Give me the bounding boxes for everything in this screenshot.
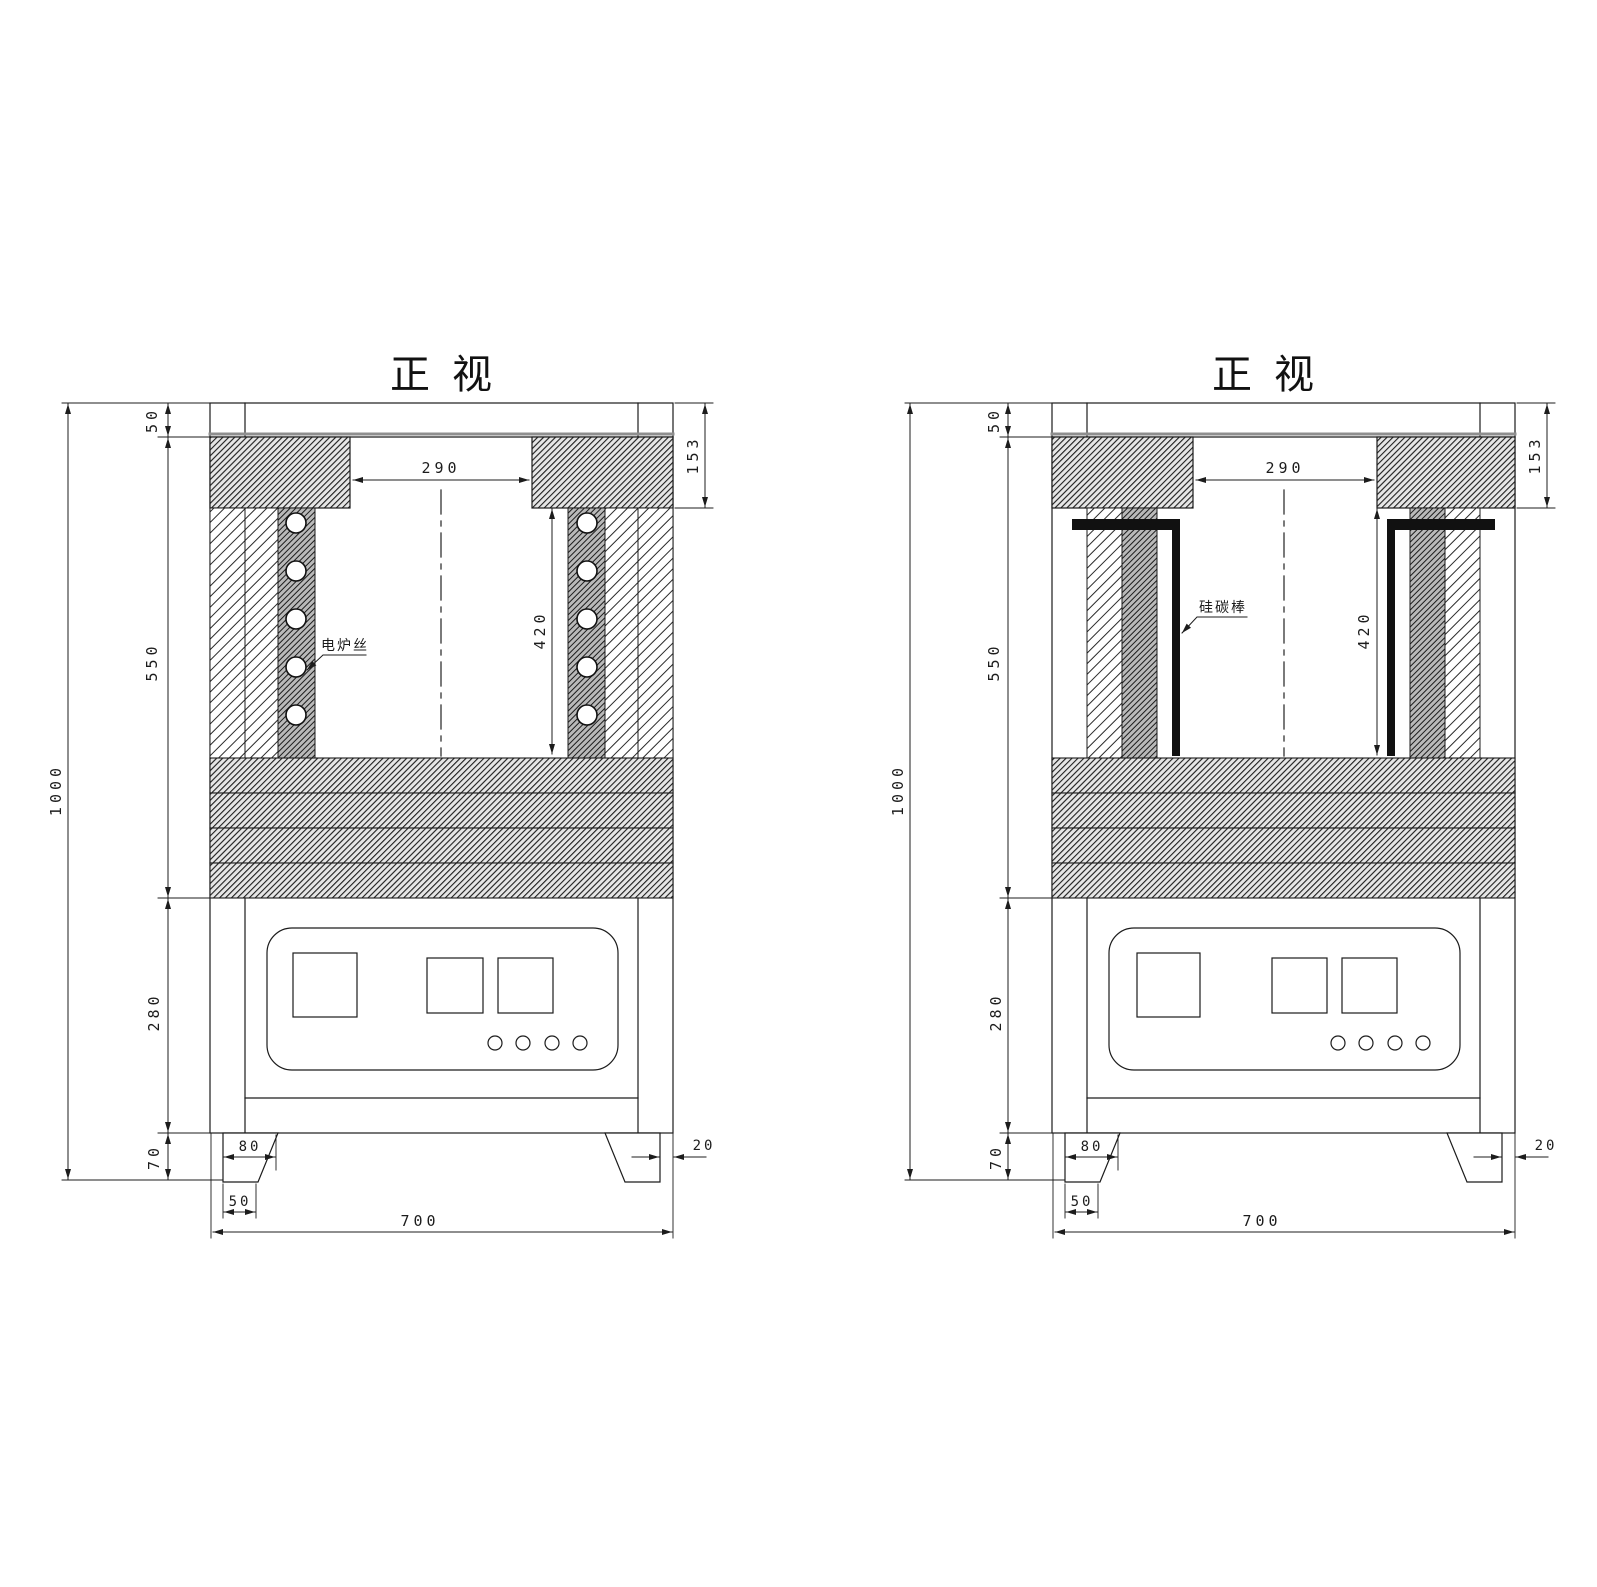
hearth-layer xyxy=(210,863,673,898)
hearth-layer xyxy=(210,758,673,793)
dim-leg-inset: 20 xyxy=(693,1138,716,1154)
left-panel-knob-1 xyxy=(488,1036,502,1050)
dim-leg-height: 70 xyxy=(987,1144,1005,1170)
left-cabinet xyxy=(245,898,638,1133)
drawing-sheet: 正视 xyxy=(0,0,1597,1587)
right-panel-knob-1 xyxy=(1331,1036,1345,1050)
right-view-title: 正视 xyxy=(1212,352,1336,398)
heating-wire-label: 电炉丝 xyxy=(321,638,369,654)
hearth-layer xyxy=(1052,758,1515,793)
heating-coil xyxy=(286,609,306,629)
dim-lid-height: 153 xyxy=(684,435,702,474)
left-meter-window-2 xyxy=(498,958,553,1013)
right-legs xyxy=(1065,1133,1502,1182)
dim-leg-top-width: 80 xyxy=(1081,1139,1104,1155)
right-wall-right-insulation xyxy=(1445,508,1480,758)
left-wall-right-mid-insulation xyxy=(605,508,638,758)
left-wall-left-outer-insulation xyxy=(210,508,245,758)
dim-shell-top: 50 xyxy=(143,407,161,433)
dim-chamber-height: 420 xyxy=(1355,610,1373,649)
left-wall-left-mid-insulation xyxy=(245,508,278,758)
heating-coil xyxy=(577,513,597,533)
heating-coil xyxy=(577,705,597,725)
right-lid-block-left xyxy=(1052,437,1193,508)
hearth-layer xyxy=(1052,828,1515,863)
left-hearth-layers xyxy=(210,758,673,898)
sic-rod-right-vertical xyxy=(1387,519,1395,756)
dim-base-width: 700 xyxy=(400,1212,439,1230)
dim-cabinet: 280 xyxy=(987,992,1005,1031)
hearth-layer xyxy=(1052,863,1515,898)
right-panel-knob-2 xyxy=(1359,1036,1373,1050)
hearth-layer xyxy=(210,793,673,828)
right-annotation-leader xyxy=(1182,617,1247,633)
hearth-layer xyxy=(1052,793,1515,828)
heating-coil xyxy=(577,657,597,677)
left-panel-knob-4 xyxy=(573,1036,587,1050)
dim-opening-width: 290 xyxy=(421,459,460,477)
heating-coil xyxy=(577,561,597,581)
drawing-svg: 正视 xyxy=(0,0,1597,1587)
dim-base-width: 700 xyxy=(1242,1212,1281,1230)
left-annotation-leader xyxy=(307,655,366,670)
dim-furnace-body: 550 xyxy=(143,642,161,681)
heating-coil xyxy=(286,513,306,533)
heating-coil xyxy=(286,705,306,725)
dim-total-height: 1000 xyxy=(889,764,907,816)
dim-leg-inset: 20 xyxy=(1535,1138,1558,1154)
right-temp-display xyxy=(1137,953,1200,1017)
right-meter-window-2 xyxy=(1342,958,1397,1013)
dim-cabinet: 280 xyxy=(145,992,163,1031)
sic-rod-right-top-bar xyxy=(1387,519,1495,530)
dim-leg-top-width: 80 xyxy=(239,1139,262,1155)
hearth-layer xyxy=(210,828,673,863)
right-panel-knob-3 xyxy=(1388,1036,1402,1050)
left-lid-block-left xyxy=(210,437,350,508)
dim-shell-top: 50 xyxy=(985,407,1003,433)
right-wall-left xyxy=(1087,508,1157,758)
sic-rod-left-vertical xyxy=(1172,519,1180,756)
left-meter-window-1 xyxy=(427,958,483,1013)
left-drawing: 正视 xyxy=(47,352,715,1238)
dim-total-height: 1000 xyxy=(47,764,65,816)
right-drawing: 正视 xyxy=(889,352,1557,1238)
left-view-title: 正视 xyxy=(390,352,514,398)
right-wall-right-refractory xyxy=(1410,508,1445,758)
right-wall-right xyxy=(1410,508,1480,758)
heating-coil xyxy=(286,561,306,581)
left-wall-right-outer-insulation xyxy=(638,508,673,758)
right-wall-left-insulation xyxy=(1087,508,1122,758)
heating-coil xyxy=(577,609,597,629)
right-lid-block-right xyxy=(1377,437,1515,508)
left-control-panel xyxy=(267,928,618,1070)
right-hearth-layers xyxy=(1052,758,1515,898)
dim-leg-bottom-width: 50 xyxy=(229,1194,252,1210)
sic-rod-left-top-bar xyxy=(1072,519,1180,530)
right-wall-left-refractory xyxy=(1122,508,1157,758)
left-lid-block-right xyxy=(532,437,673,508)
dim-chamber-height: 420 xyxy=(531,610,549,649)
left-panel-knob-2 xyxy=(516,1036,530,1050)
left-legs xyxy=(223,1133,660,1182)
dim-leg-height: 70 xyxy=(145,1144,163,1170)
heating-coil xyxy=(286,657,306,677)
dim-opening-width: 290 xyxy=(1265,459,1304,477)
right-panel-knob-4 xyxy=(1416,1036,1430,1050)
left-temp-display xyxy=(293,953,357,1017)
dim-furnace-body: 550 xyxy=(985,642,1003,681)
dim-leg-bottom-width: 50 xyxy=(1071,1194,1094,1210)
dim-lid-height: 153 xyxy=(1526,435,1544,474)
right-meter-window-1 xyxy=(1272,958,1327,1013)
right-cabinet xyxy=(1087,898,1480,1133)
right-control-panel xyxy=(1109,928,1460,1070)
left-panel-knob-3 xyxy=(545,1036,559,1050)
sic-rod-label: 硅碳棒 xyxy=(1199,600,1247,616)
